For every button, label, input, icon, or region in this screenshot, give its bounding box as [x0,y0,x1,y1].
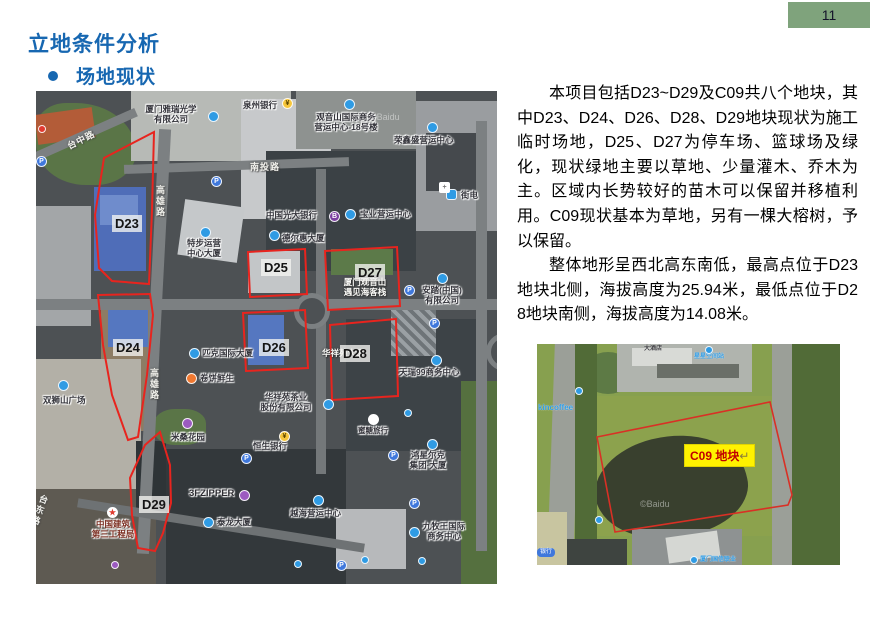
poi-label: 安踏(中国) 有限公司 [418,285,466,305]
plot-label-D27: D27 [355,264,385,281]
bullet-icon [48,71,58,81]
bus-stop-icon [404,409,412,417]
poi-icon [111,561,119,569]
parking-icon: P [336,560,347,571]
bus-stop-icon [361,556,369,564]
poi-icon [345,209,356,220]
bus-stop-icon [575,387,583,395]
parking-icon: P [211,176,222,187]
poi-icon [409,527,420,538]
poi-label: 恒生银行 [253,441,287,451]
bus-stop-icon [595,516,603,524]
description-text: 本项目包括D23~D29及C09共八个地块，其中D23、D24、D26、D28、… [517,82,858,328]
plot-label-D29: D29 [139,496,169,513]
poi-label: 中国建筑 第三工程局 [91,519,135,539]
map-watermark: ©Baidu [640,499,670,509]
poi-label: 匹克国际大厦 [202,348,253,358]
bus-stop-icon [418,557,426,565]
star-icon: ★ [107,507,118,518]
parking-icon: P [404,285,415,296]
paragraph-2: 整体地形呈西北高东南低，最高点位于D23地块北侧，海拔高度为25.94米，最低点… [517,254,858,328]
poi-label: 特步运营 中心大厦 [184,238,224,258]
poi-label: 银行 [537,548,555,557]
poi-icon [200,227,211,238]
poi-icon [269,230,280,241]
paragraph-1: 本项目包括D23~D29及C09共八个地块，其中D23、D24、D26、D28、… [517,82,858,254]
poi-label: kincoffee [538,404,573,411]
plot-C09-boundary [597,402,792,532]
poi-label: 天瑞99商务中心 [399,367,459,377]
metro-station-icon: B [329,211,340,222]
return-mark: ↵ [739,449,749,463]
plot-D23-boundary [95,132,154,284]
plot-label-D24: D24 [113,339,143,356]
poi-icon [323,399,334,410]
page-title: 立地条件分析 [28,28,160,58]
garden-icon [182,418,193,429]
bank-icon: ¥ [282,98,293,109]
poi-icon [58,380,69,391]
map-watermark: ©Baidu [370,112,400,122]
page-number-badge: 11 [788,2,870,28]
poi-icon [189,348,200,359]
poi-icon [208,111,219,122]
travel-icon [368,414,379,425]
poi-label: 米桑花园 [171,432,205,442]
poi-label: 越海营运中心 [290,508,341,518]
plot-label-D26: D26 [259,339,289,356]
poi-icon [427,439,438,450]
poi-label: 厦门雅瑞光学 有限公司 [138,104,204,124]
poi-icon [344,99,355,110]
parking-icon: P [241,453,252,464]
restaurant-icon [186,373,197,384]
c09-satellite-map: C09 地块↵ kincoffee 大酒店 星星空间站 银行 厦门国信联业 ©B… [537,344,840,565]
poi-label: 中国光大银行 [266,210,317,220]
poi-icon [437,273,448,284]
poi-icon [203,517,214,528]
poi-icon [690,556,698,564]
poi-label: 厦门国信联业 [700,557,736,564]
bus-stop-icon [705,346,713,354]
poi-label: 宝业营运中心 [360,209,411,219]
poi-label: 3FZIPPER [189,489,234,499]
plot-label-D25: D25 [261,259,291,276]
bus-stop-icon [294,560,302,568]
slide: 11 立地条件分析 场地现状 本项目包括D23~D29及C09共八个地块，其中D… [0,0,872,617]
poi-label: 卷饼鲜生 [200,373,234,383]
poi-icon [431,355,442,366]
plot-D24-boundary [98,294,153,440]
road-label: 高雄路 [148,368,161,401]
poi-label: 泰龙大厦 [217,517,251,527]
poi-icon [313,495,324,506]
parking-icon: P [429,318,440,329]
bank-icon: ¥ [279,431,290,442]
main-satellite-map: 台中路 高雄路 南投路 高雄路 台东路 厦门雅瑞光学 有限公司 泉州银行 观音山… [36,91,497,584]
plot-label-C09: C09 地块↵ [684,444,755,467]
poi-label: 双狮山广场 [43,395,86,405]
plot-label-D23: D23 [112,215,142,232]
parking-icon: P [388,450,399,461]
poi-label: 鸿星尔克 集团·大厦 [408,450,448,470]
cross-icon: + [439,182,450,193]
poi-label: 九牧王国际 商务中心 [422,521,466,541]
plot-D29-boundary [130,432,171,551]
poi-label: 大酒店 [644,346,662,353]
road-label: 南投路 [250,160,280,173]
poi-label: 德尔惠大厦 [282,233,325,243]
parking-icon: P [409,498,420,509]
shop-icon [239,490,250,501]
subtitle-row: 场地现状 [48,62,156,89]
plot-label-C09-text: C09 地块 [690,449,739,463]
poi-label: 荣鑫盛营运中心 [394,135,454,145]
parking-icon: P [36,156,47,167]
poi-label: 泉州银行 [243,100,277,110]
poi-label: 蜜糖旅行 [358,426,388,436]
poi-label: 街电 [461,190,478,200]
subtitle: 场地现状 [76,62,156,89]
poi-label: 星星空间站 [694,354,724,361]
road-label: 高雄路 [154,185,167,218]
poi-icon [427,122,438,133]
plot-label-D28: D28 [340,345,370,362]
poi-label: 华祥苑茶业 股份有限公司 [260,392,312,412]
poi-icon [38,125,46,133]
